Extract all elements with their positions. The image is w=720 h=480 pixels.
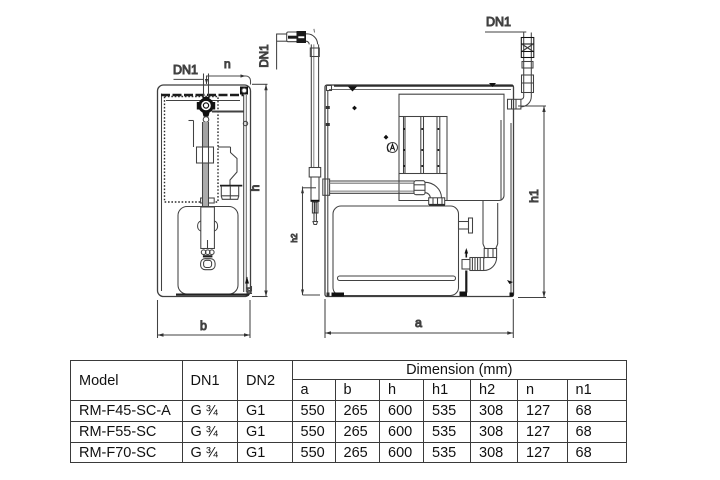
svg-text:a: a <box>415 316 422 330</box>
svg-text:DN1: DN1 <box>259 44 271 67</box>
svg-text:n1: n1 <box>247 286 254 294</box>
svg-text:n: n <box>224 57 231 71</box>
svg-text:h1: h1 <box>527 189 541 203</box>
svg-text:DN1: DN1 <box>486 15 511 29</box>
svg-text:h: h <box>248 185 262 192</box>
svg-text:b: b <box>200 319 207 333</box>
svg-text:h2: h2 <box>290 233 299 242</box>
svg-text:DN1: DN1 <box>173 63 198 77</box>
